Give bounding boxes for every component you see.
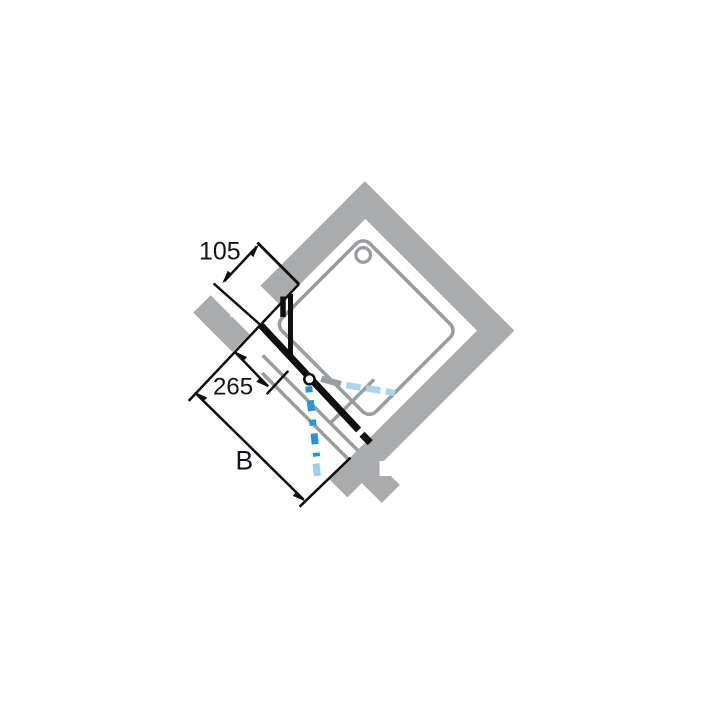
svg-text:105: 105	[199, 238, 241, 266]
svg-text:265: 265	[213, 374, 253, 401]
svg-text:B: B	[236, 446, 254, 476]
